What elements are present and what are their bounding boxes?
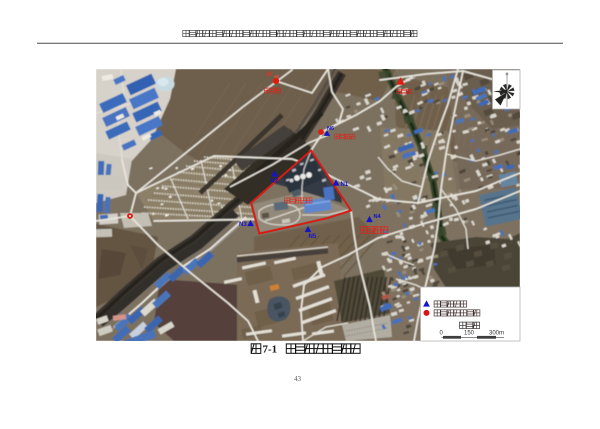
svg-text:N3: N3 [239, 222, 247, 228]
svg-text:N1: N1 [341, 182, 349, 188]
svg-text:N2: N2 [271, 179, 279, 185]
svg-text:N5: N5 [309, 234, 317, 240]
svg-text:N4: N4 [374, 214, 382, 220]
svg-text:150: 150 [464, 330, 475, 336]
svg-text:43: 43 [294, 375, 302, 383]
svg-text:300m: 300m [489, 330, 504, 336]
svg-text:N6: N6 [327, 126, 334, 132]
svg-text:7-1: 7-1 [263, 344, 278, 356]
